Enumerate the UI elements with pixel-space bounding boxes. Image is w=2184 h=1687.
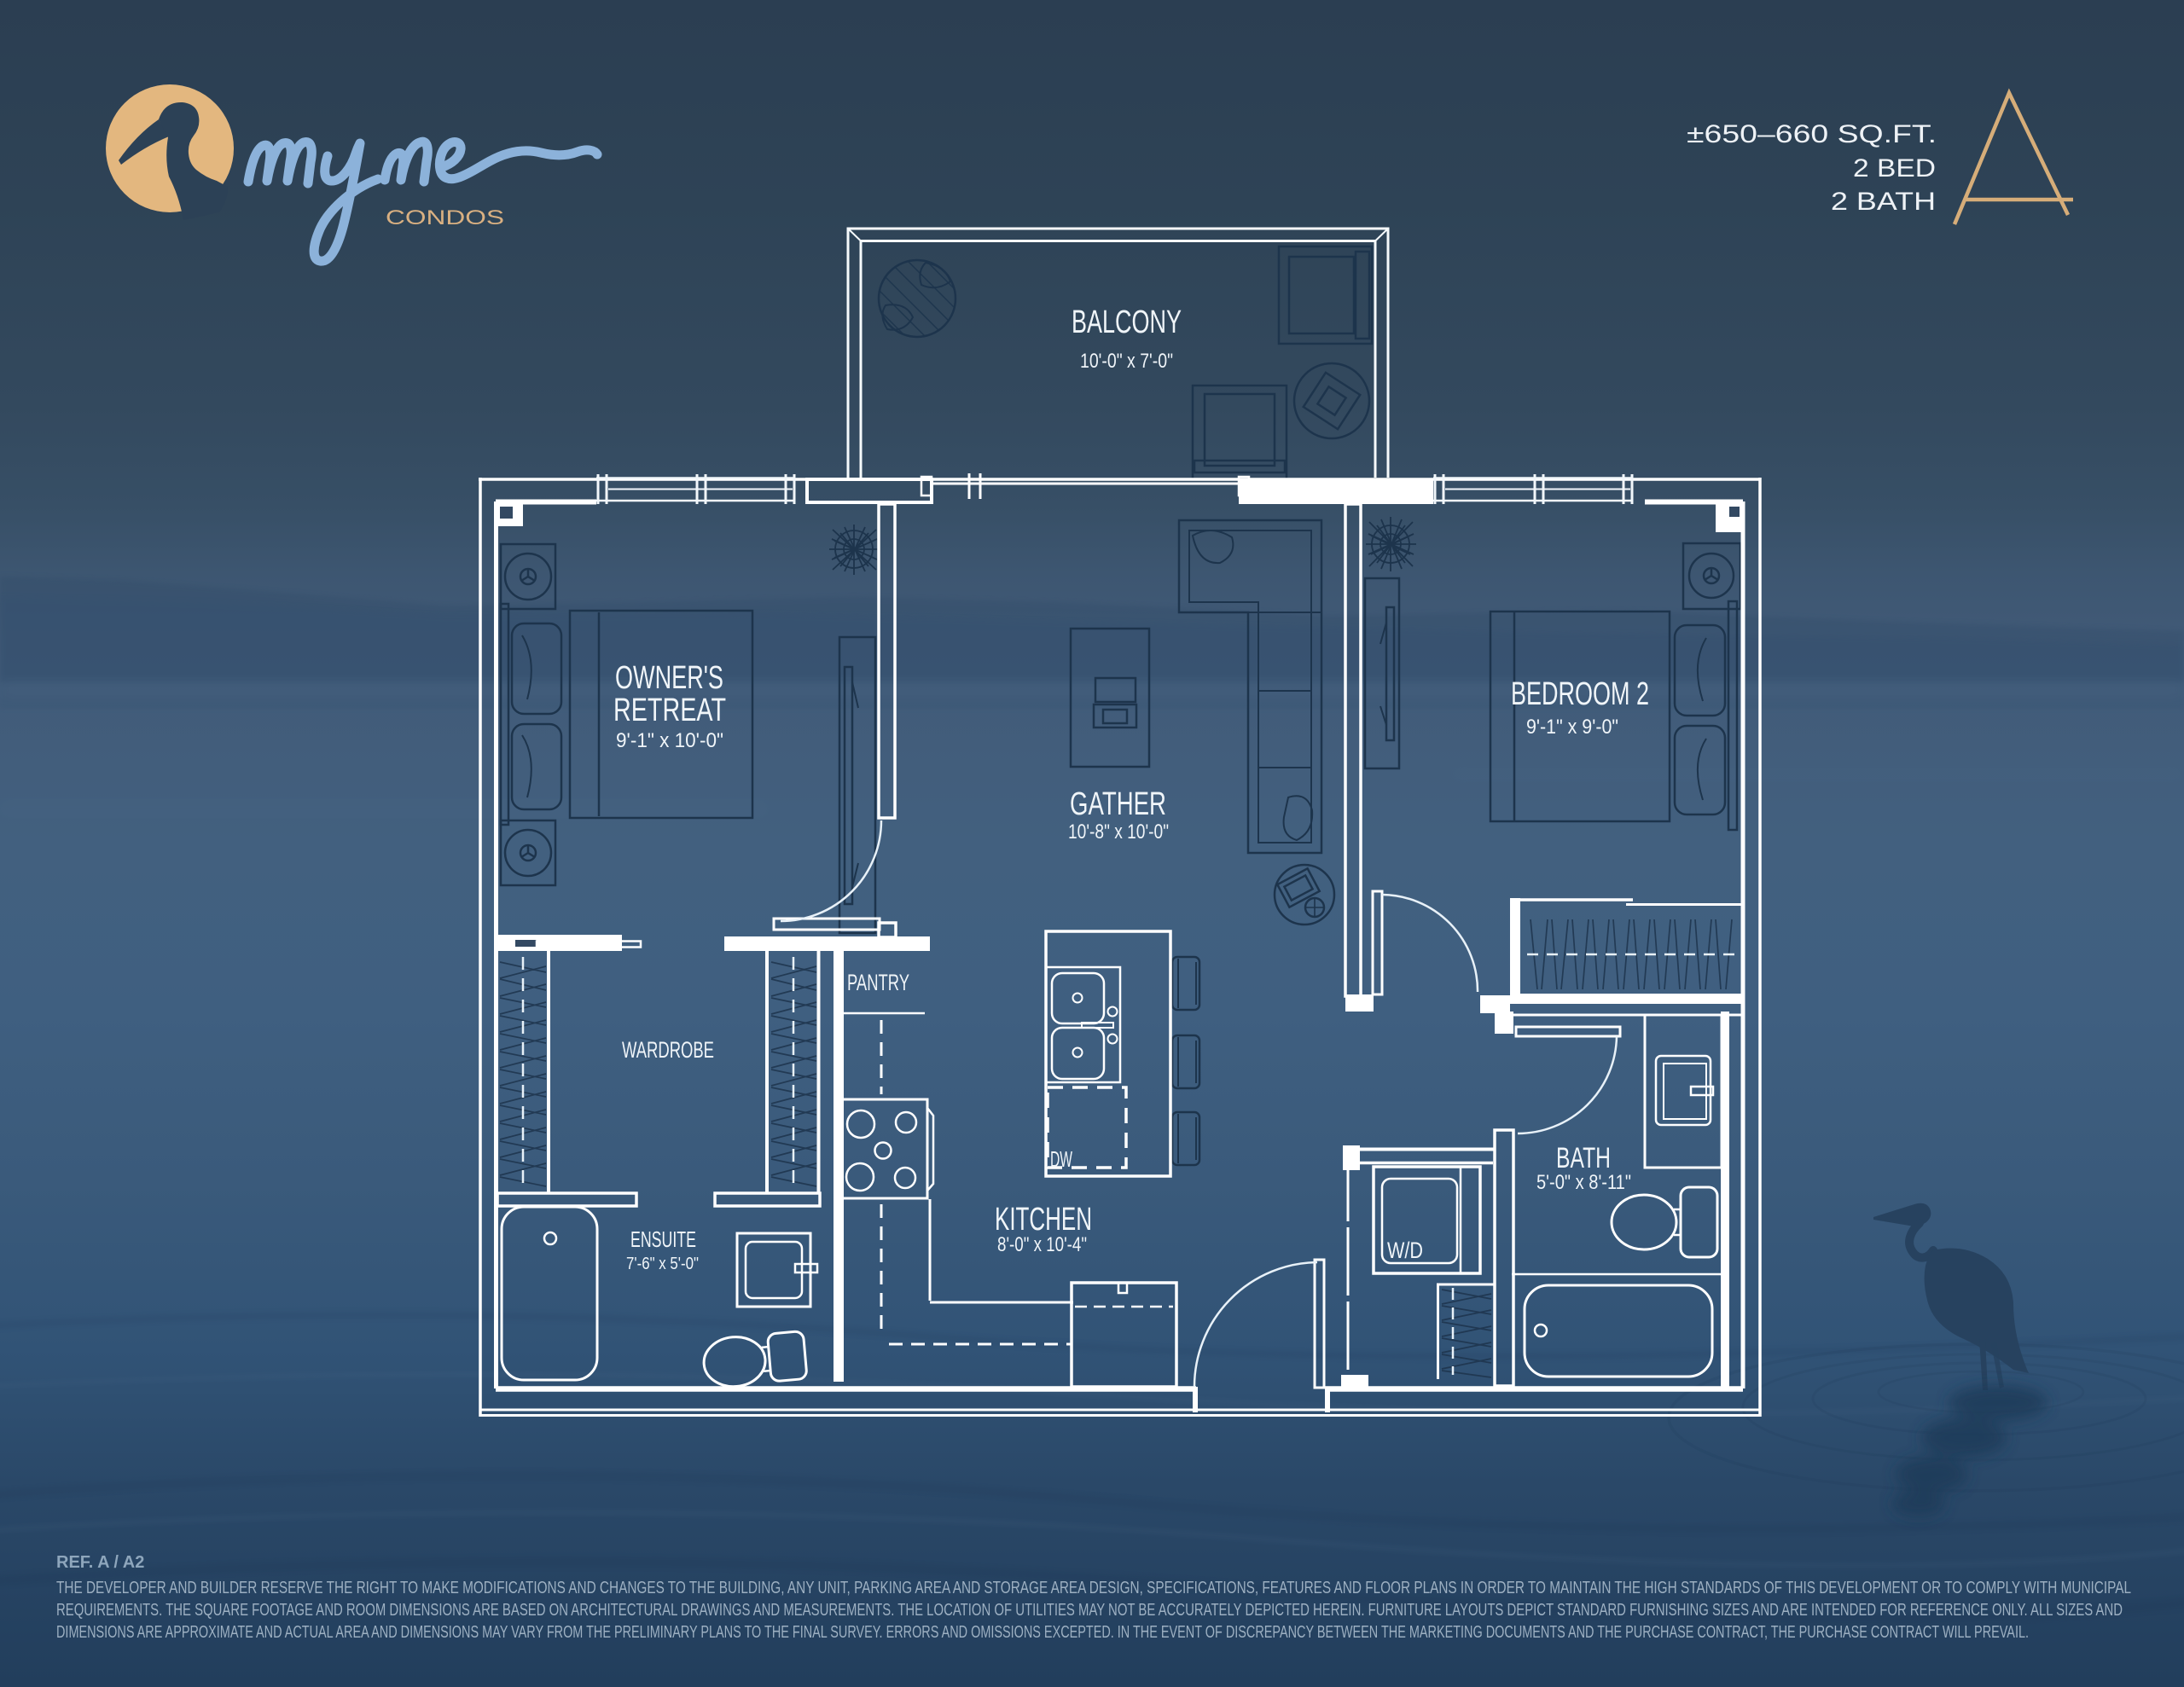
svg-text:2 BATH: 2 BATH [1831, 188, 1936, 216]
svg-text:OWNER'S: OWNER'S [615, 660, 723, 696]
svg-text:THE DEVELOPER AND BUILDER RESE: THE DEVELOPER AND BUILDER RESERVE THE RI… [56, 1578, 2131, 1597]
svg-text:REF. A / A2: REF. A / A2 [56, 1553, 144, 1572]
svg-text:DW: DW [1050, 1146, 1072, 1172]
svg-text:10'-0" x 7'-0": 10'-0" x 7'-0" [1080, 350, 1173, 373]
svg-text:PANTRY: PANTRY [847, 970, 909, 995]
svg-text:2 BED: 2 BED [1853, 154, 1936, 183]
svg-text:CONDOS: CONDOS [386, 206, 504, 229]
svg-text:9'-1" x 9'-0": 9'-1" x 9'-0" [1526, 716, 1618, 739]
svg-text:ENSUITE: ENSUITE [630, 1226, 696, 1252]
svg-text:5'-0" x 8'-11": 5'-0" x 8'-11" [1536, 1171, 1631, 1194]
svg-text:WARDROBE: WARDROBE [622, 1037, 714, 1063]
svg-text:±650–660 SQ.FT.: ±650–660 SQ.FT. [1687, 120, 1937, 148]
svg-text:KITCHEN: KITCHEN [995, 1202, 1092, 1238]
svg-text:GATHER: GATHER [1070, 786, 1166, 822]
svg-text:10'-8" x 10'-0": 10'-8" x 10'-0" [1068, 820, 1169, 843]
svg-text:9'-1" x 10'-0": 9'-1" x 10'-0" [616, 729, 723, 752]
svg-text:REQUIREMENTS. THE SQUARE FOOTA: REQUIREMENTS. THE SQUARE FOOTAGE AND ROO… [56, 1600, 2123, 1620]
svg-text:8'-0" x 10'-4": 8'-0" x 10'-4" [997, 1233, 1087, 1256]
svg-text:BEDROOM 2: BEDROOM 2 [1511, 676, 1649, 712]
svg-text:DIMENSIONS ARE APPROXIMATE AND: DIMENSIONS ARE APPROXIMATE AND ACTUAL AR… [56, 1622, 2029, 1642]
svg-text:BATH: BATH [1556, 1142, 1611, 1174]
svg-text:7'-6" x 5'-0": 7'-6" x 5'-0" [626, 1255, 699, 1273]
svg-text:W/D: W/D [1387, 1238, 1423, 1263]
svg-text:RETREAT: RETREAT [613, 693, 726, 728]
svg-text:BALCONY: BALCONY [1072, 304, 1182, 340]
